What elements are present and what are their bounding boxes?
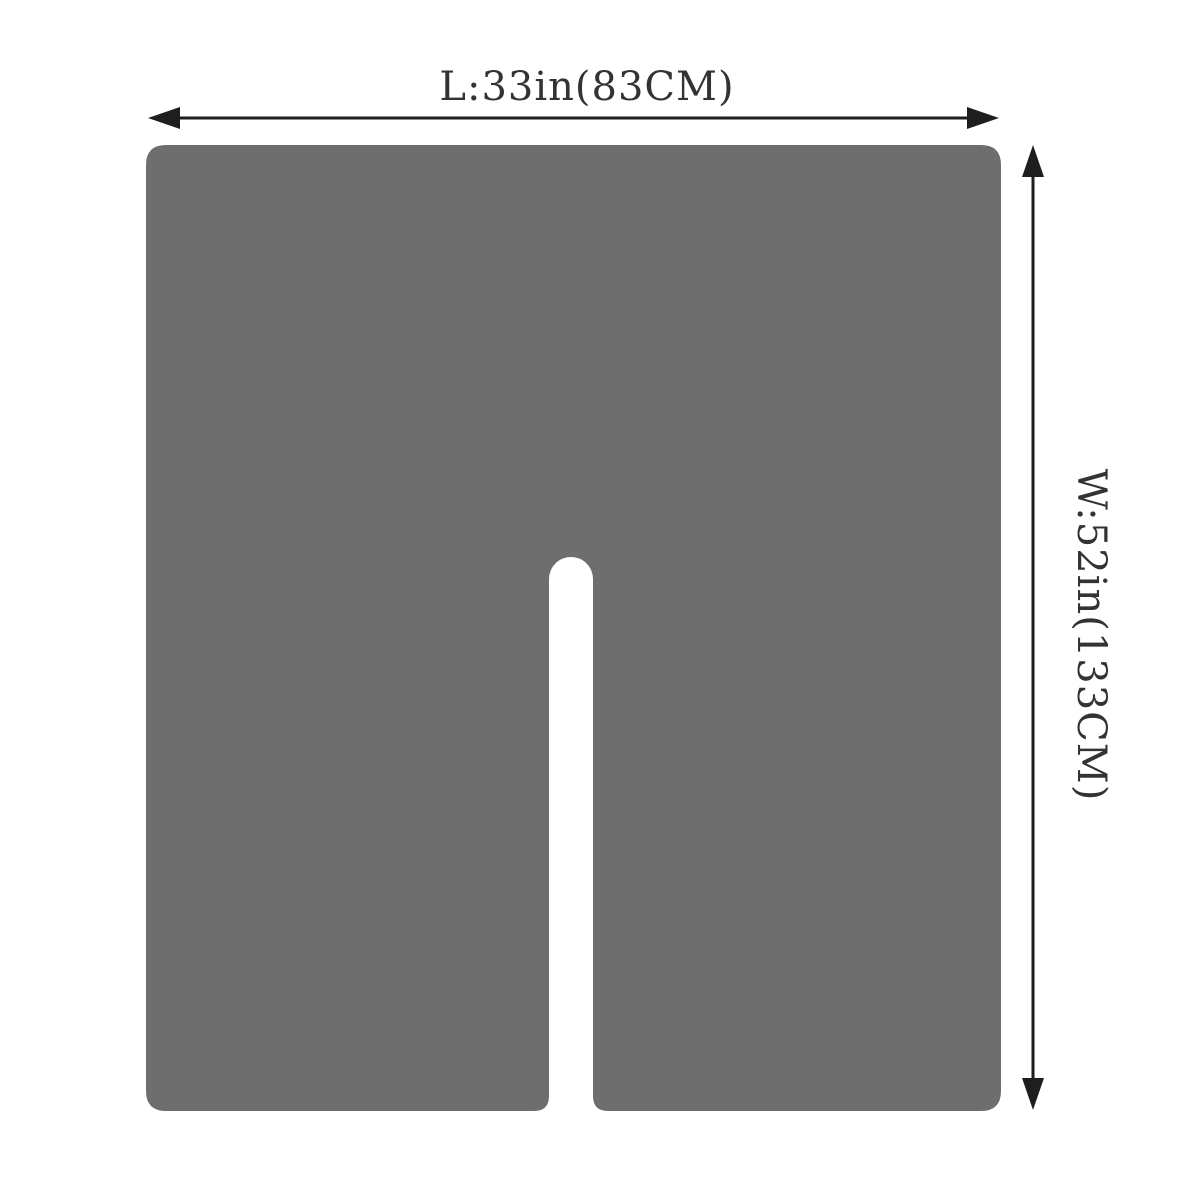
- width-dimension-label: W:52in(133CM): [1065, 415, 1117, 855]
- up-arrowhead-icon: [1022, 145, 1044, 177]
- down-arrowhead-icon: [1022, 1078, 1044, 1110]
- length-dimension-label: L:33in(83CM): [162, 62, 1012, 112]
- product-shape: [146, 145, 1001, 1111]
- product-size-diagram: L:33in(83CM) W:52in(133CM): [0, 0, 1200, 1200]
- width-dimension-arrow: [1022, 145, 1044, 1110]
- size-diagram-graphic: [0, 0, 1200, 1200]
